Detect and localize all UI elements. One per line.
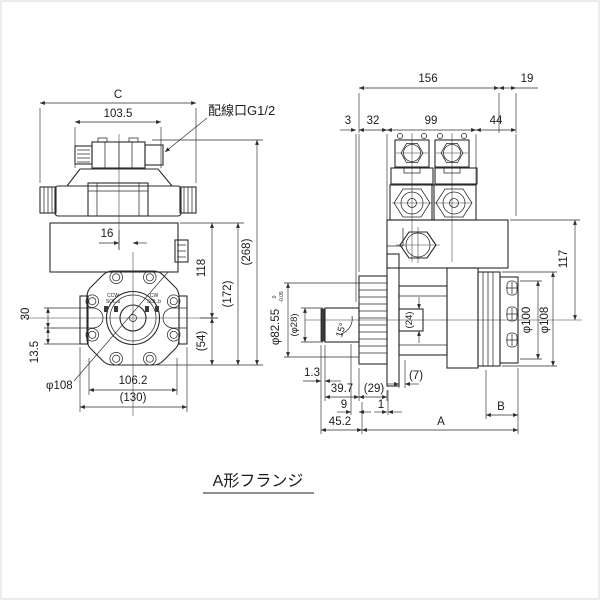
dim-106-2: 106.2 [119, 375, 148, 387]
dim-phi28: (φ28) [289, 313, 300, 336]
dim-phi108-side: φ108 [539, 307, 551, 334]
dim-30: 30 [20, 308, 32, 321]
sol-b-label: SOL.b [147, 299, 161, 305]
dim-99: 99 [425, 115, 438, 127]
port-mark [104, 306, 108, 312]
end-plate-screws [506, 281, 518, 347]
dim-24: (24) [404, 312, 415, 329]
port-mark [155, 306, 159, 312]
side-view-dimensions: 156 19 3 32 99 44 117 φ100 [270, 73, 580, 434]
dim-39-7: 39.7 [331, 383, 353, 395]
wiring-port-label: 配線口G1/2 [208, 103, 275, 118]
dim-29: (29) [364, 383, 385, 395]
dim-118: 118 [196, 259, 208, 277]
port-mark [145, 306, 149, 312]
drawing-canvas: CCW SOL.a CW SOL.b C 103.5 配線口G1/2 [0, 0, 600, 600]
dim-13-5: 13.5 [29, 341, 41, 363]
dim-phi100: φ100 [521, 307, 533, 334]
port-mark [114, 306, 118, 312]
front-view-dimensions: C 103.5 配線口G1/2 16 118 (54) (17 [20, 89, 275, 412]
dim-1-3: 1.3 [304, 367, 320, 379]
front-view: CCW SOL.a CW SOL.b C 103.5 配線口G1/2 [20, 89, 275, 416]
dim-32: 32 [367, 115, 380, 127]
motor-body-side [387, 220, 518, 368]
page-border [1, 1, 599, 599]
dim-172: (172) [222, 280, 234, 307]
solenoid-valve-side [390, 133, 477, 220]
sol-a-label: SOL.a [106, 299, 120, 305]
front-view-centerlines [22, 134, 218, 416]
dim-117: 117 [558, 250, 570, 268]
solenoid-valve-front [40, 138, 196, 216]
dim-3: 3 [345, 115, 351, 127]
dim-156: 156 [418, 73, 437, 85]
dim-a: A [437, 416, 445, 428]
spline-teeth [359, 283, 387, 353]
dim-b: B [497, 401, 505, 413]
dim-103-5: 103.5 [104, 108, 133, 120]
dim-54: (54) [196, 331, 208, 352]
side-view-centerlines [305, 133, 582, 320]
dim-7: (7) [409, 370, 423, 382]
dim-phi82-55-tol-upper: 0 [272, 295, 278, 298]
dim-130: (130) [120, 392, 147, 404]
dim-phi82-55-tol-lower: -0.05 [279, 291, 285, 303]
dim-268: (268) [241, 238, 253, 265]
dim-phi108-front: φ108 [46, 380, 73, 392]
dim-16: 16 [101, 228, 114, 240]
dim-19: 19 [521, 73, 534, 85]
caption-group: A形フランジ [203, 472, 314, 493]
dim-1: 1 [378, 399, 384, 411]
dim-44: 44 [490, 115, 503, 127]
dim-c: C [114, 89, 122, 101]
dim-15deg: 15° [334, 322, 349, 339]
dim-9: 9 [341, 399, 347, 411]
dim-45-2: 45.2 [329, 416, 351, 428]
caption-text: A形フランジ [213, 472, 304, 490]
technical-drawing-page: CCW SOL.a CW SOL.b C 103.5 配線口G1/2 [0, 0, 600, 600]
dim-phi82-55: φ82.55 [270, 309, 282, 345]
side-view: 15° 156 19 3 32 99 44 [270, 73, 582, 434]
